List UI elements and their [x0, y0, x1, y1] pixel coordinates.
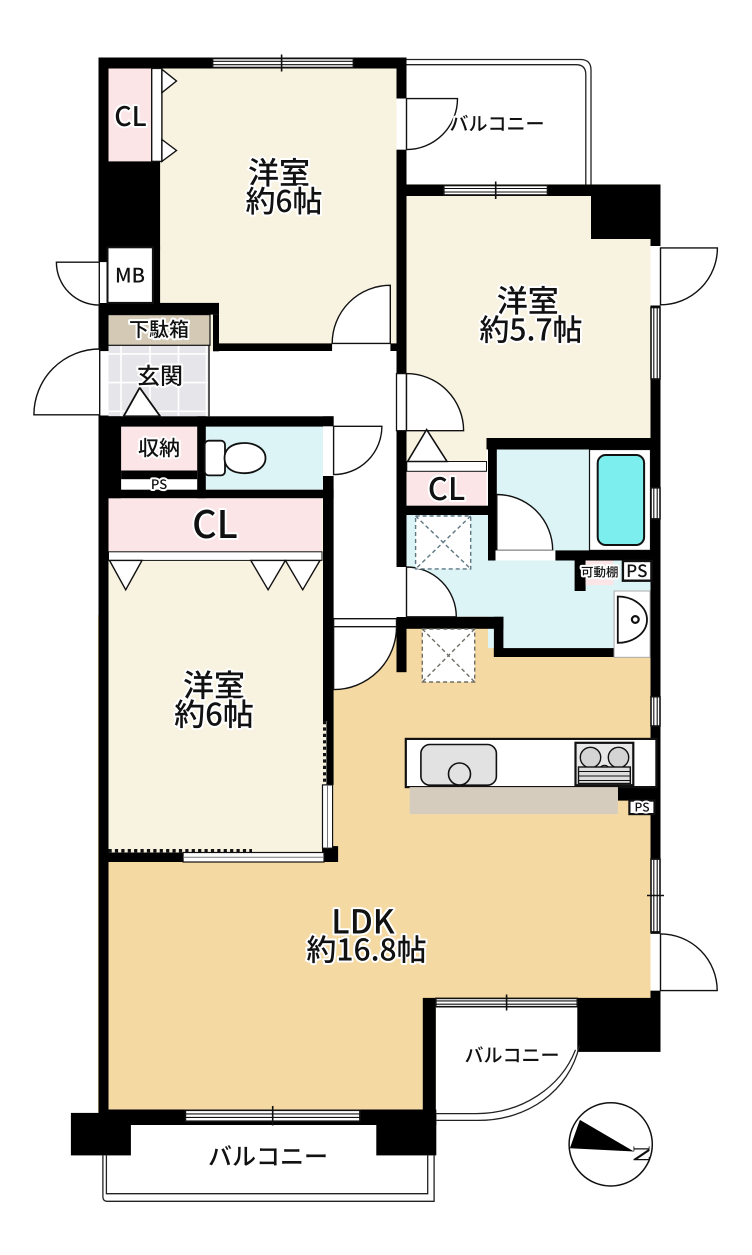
svg-text:約6帖: 約6帖 [245, 177, 322, 221]
svg-text:CL: CL [114, 95, 147, 134]
svg-text:約5.7帖: 約5.7帖 [479, 306, 582, 350]
svg-text:CL: CL [192, 494, 238, 549]
svg-text:PS: PS [626, 557, 647, 582]
svg-text:バルコニー: バルコニー [464, 1041, 559, 1068]
svg-text:下駄箱: 下駄箱 [129, 314, 189, 343]
svg-text:PS: PS [151, 474, 167, 493]
svg-text:約16.8帖: 約16.8帖 [306, 926, 426, 970]
svg-text:MB: MB [115, 260, 145, 289]
svg-text:CL: CL [428, 464, 465, 509]
svg-text:PS: PS [634, 799, 649, 816]
svg-text:玄関: 玄関 [137, 357, 183, 391]
svg-text:可動棚: 可動棚 [581, 562, 619, 581]
svg-text:N: N [628, 1146, 654, 1163]
svg-text:約6帖: 約6帖 [174, 690, 254, 735]
svg-text:収納: 収納 [138, 433, 180, 463]
svg-text:バルコニー: バルコニー [208, 1137, 328, 1172]
svg-text:バルコニー: バルコニー [449, 110, 544, 137]
